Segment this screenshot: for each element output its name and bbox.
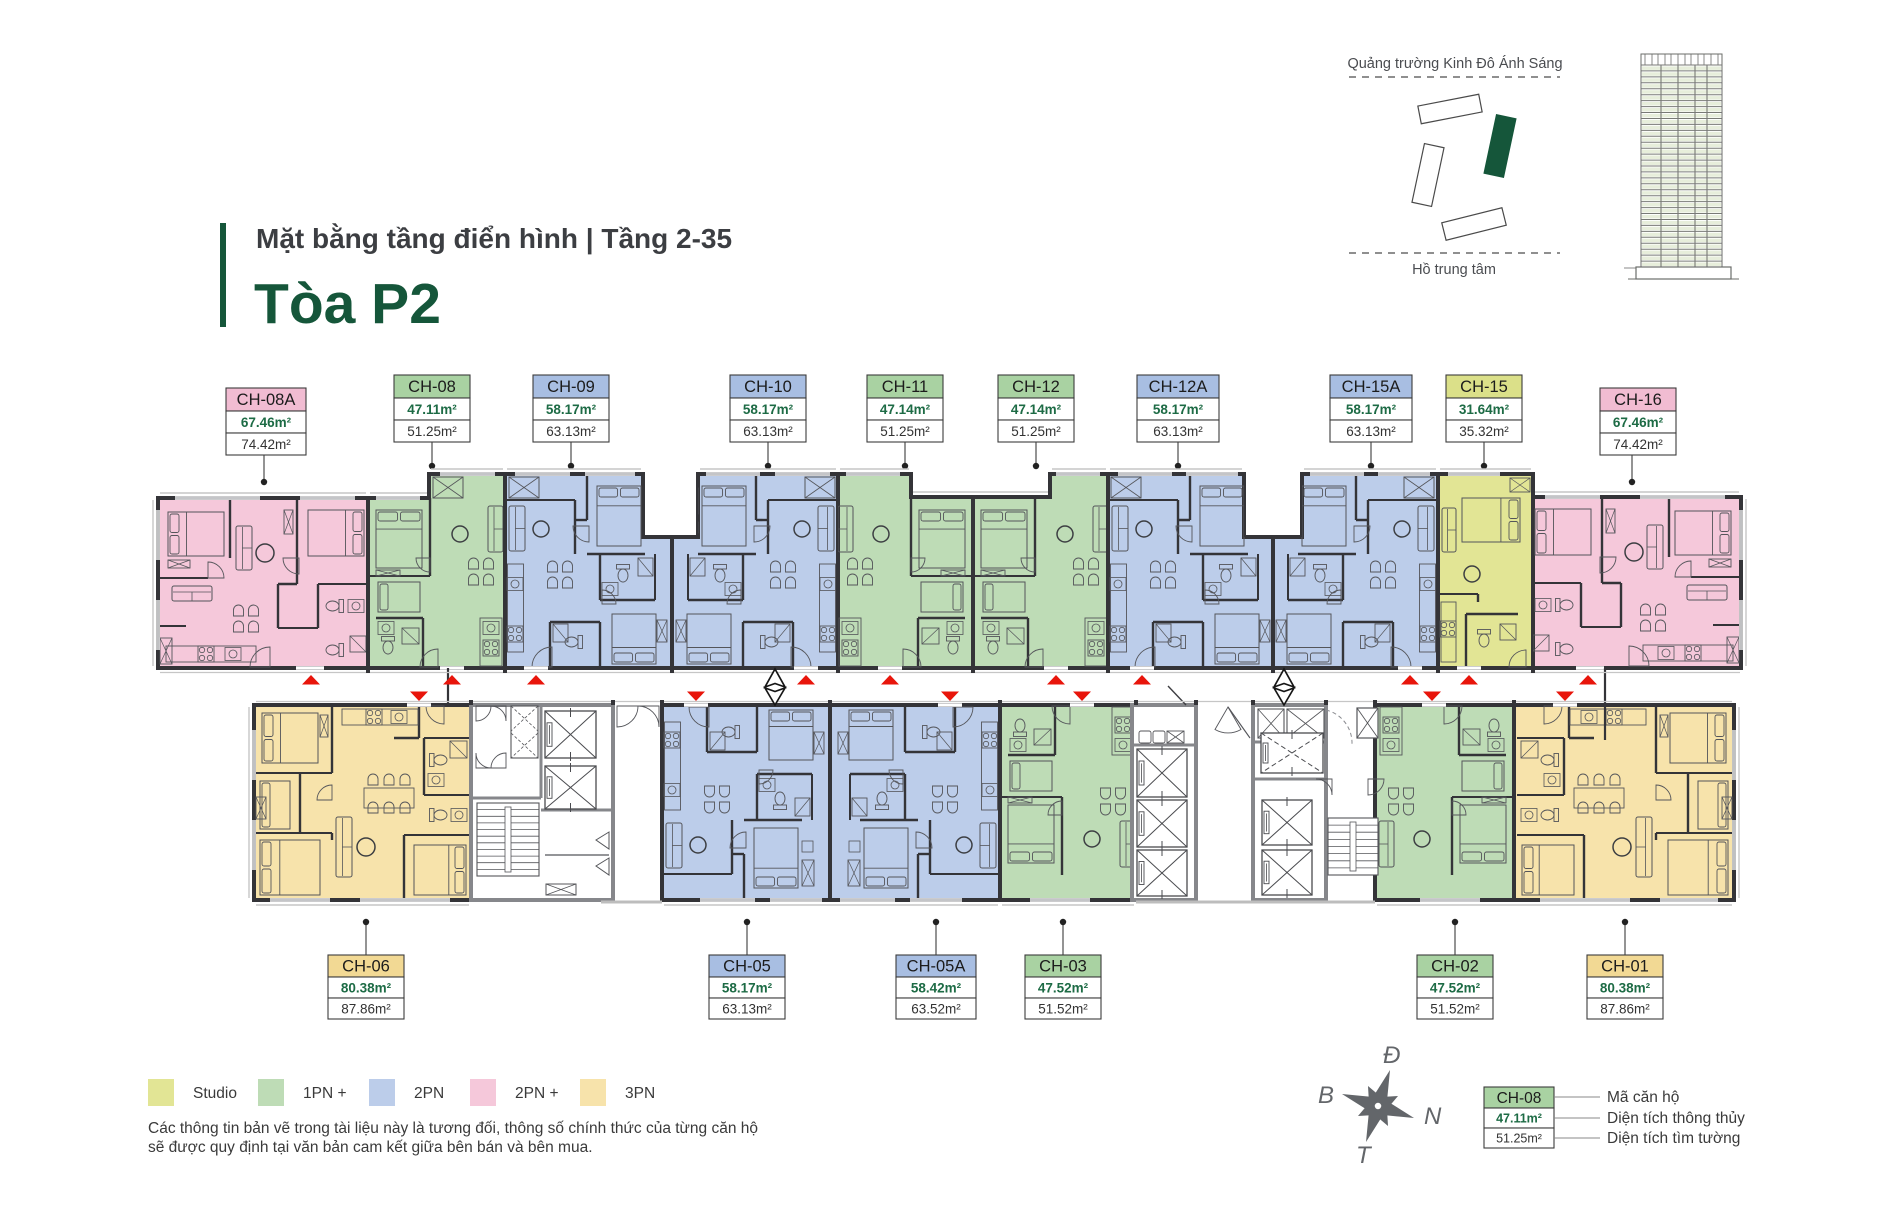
svg-text:Mã căn hộ: Mã căn hộ — [1607, 1089, 1679, 1106]
svg-text:58.17m²: 58.17m² — [743, 402, 794, 417]
svg-text:47.52m²: 47.52m² — [1430, 981, 1481, 996]
svg-text:63.13m²: 63.13m² — [1153, 424, 1203, 439]
svg-text:Đ: Đ — [1383, 1042, 1400, 1069]
svg-text:87.86m²: 87.86m² — [1600, 1002, 1650, 1017]
svg-text:CH-08: CH-08 — [1497, 1090, 1542, 1107]
svg-text:63.13m²: 63.13m² — [743, 424, 793, 439]
svg-text:sẽ được quy định tại văn bản c: sẽ được quy định tại văn bản cam kết giữ… — [148, 1139, 593, 1156]
svg-text:CH-06: CH-06 — [342, 958, 390, 976]
svg-text:51.25m²: 51.25m² — [1496, 1132, 1542, 1146]
svg-text:Diện tích tìm tường: Diện tích tìm tường — [1607, 1130, 1740, 1147]
svg-text:CH-11: CH-11 — [882, 378, 928, 396]
svg-text:Hồ trung tâm: Hồ trung tâm — [1412, 262, 1496, 278]
svg-text:63.13m²: 63.13m² — [1346, 424, 1396, 439]
svg-text:80.38m²: 80.38m² — [341, 981, 392, 996]
svg-text:63.13m²: 63.13m² — [546, 424, 596, 439]
svg-text:47.14m²: 47.14m² — [880, 402, 931, 417]
svg-text:CH-08A: CH-08A — [237, 391, 296, 409]
svg-text:51.25m²: 51.25m² — [407, 424, 457, 439]
svg-text:CH-12A: CH-12A — [1149, 378, 1208, 396]
svg-text:80.38m²: 80.38m² — [1600, 981, 1651, 996]
svg-text:Tòa P2: Tòa P2 — [254, 272, 441, 336]
svg-text:74.42m²: 74.42m² — [241, 437, 291, 452]
svg-text:CH-01: CH-01 — [1601, 958, 1649, 976]
svg-text:58.42m²: 58.42m² — [911, 981, 962, 996]
svg-text:1PN +: 1PN + — [303, 1085, 347, 1102]
svg-text:58.17m²: 58.17m² — [546, 402, 597, 417]
svg-text:Các thông tin bản vẽ trong tài: Các thông tin bản vẽ trong tài liệu này … — [148, 1120, 758, 1137]
svg-text:CH-05A: CH-05A — [907, 958, 966, 976]
svg-text:67.46m²: 67.46m² — [1613, 415, 1664, 430]
svg-text:Studio: Studio — [193, 1085, 237, 1102]
svg-text:47.52m²: 47.52m² — [1038, 981, 1089, 996]
svg-text:31.64m²: 31.64m² — [1459, 402, 1510, 417]
svg-text:47.11m²: 47.11m² — [1496, 1112, 1542, 1126]
svg-text:74.42m²: 74.42m² — [1613, 437, 1663, 452]
svg-text:51.25m²: 51.25m² — [880, 424, 930, 439]
svg-text:B: B — [1318, 1082, 1334, 1109]
svg-text:CH-15A: CH-15A — [1342, 378, 1401, 396]
svg-text:2PN: 2PN — [414, 1085, 444, 1102]
svg-text:47.14m²: 47.14m² — [1011, 402, 1062, 417]
svg-text:58.17m²: 58.17m² — [1153, 402, 1204, 417]
svg-text:63.13m²: 63.13m² — [722, 1002, 772, 1017]
svg-text:CH-10: CH-10 — [744, 378, 792, 396]
svg-text:47.11m²: 47.11m² — [407, 402, 457, 417]
svg-text:2PN +: 2PN + — [515, 1085, 559, 1102]
svg-text:51.52m²: 51.52m² — [1430, 1002, 1480, 1017]
svg-text:CH-09: CH-09 — [547, 378, 595, 396]
svg-text:51.52m²: 51.52m² — [1038, 1002, 1088, 1017]
svg-text:63.52m²: 63.52m² — [911, 1002, 961, 1017]
svg-text:CH-16: CH-16 — [1614, 391, 1662, 409]
svg-text:CH-15: CH-15 — [1460, 378, 1508, 396]
svg-text:CH-12: CH-12 — [1012, 378, 1060, 396]
svg-text:CH-05: CH-05 — [723, 958, 771, 976]
svg-text:35.32m²: 35.32m² — [1459, 424, 1509, 439]
svg-text:67.46m²: 67.46m² — [241, 415, 292, 430]
svg-text:CH-02: CH-02 — [1431, 958, 1479, 976]
svg-text:3PN: 3PN — [625, 1085, 655, 1102]
svg-text:87.86m²: 87.86m² — [341, 1002, 391, 1017]
svg-text:T: T — [1356, 1142, 1373, 1169]
svg-text:58.17m²: 58.17m² — [1346, 402, 1397, 417]
svg-text:Diện tích thông thủy: Diện tích thông thủy — [1607, 1110, 1745, 1127]
svg-text:Mặt bằng tầng điển hình | Tầng: Mặt bằng tầng điển hình | Tầng 2-35 — [256, 223, 732, 254]
svg-text:CH-08: CH-08 — [408, 378, 456, 396]
svg-text:CH-03: CH-03 — [1039, 958, 1087, 976]
svg-text:N: N — [1424, 1103, 1442, 1130]
svg-text:51.25m²: 51.25m² — [1011, 424, 1061, 439]
svg-text:Quảng trường Kinh Đô Ánh Sáng: Quảng trường Kinh Đô Ánh Sáng — [1347, 55, 1562, 72]
svg-text:58.17m²: 58.17m² — [722, 981, 773, 996]
